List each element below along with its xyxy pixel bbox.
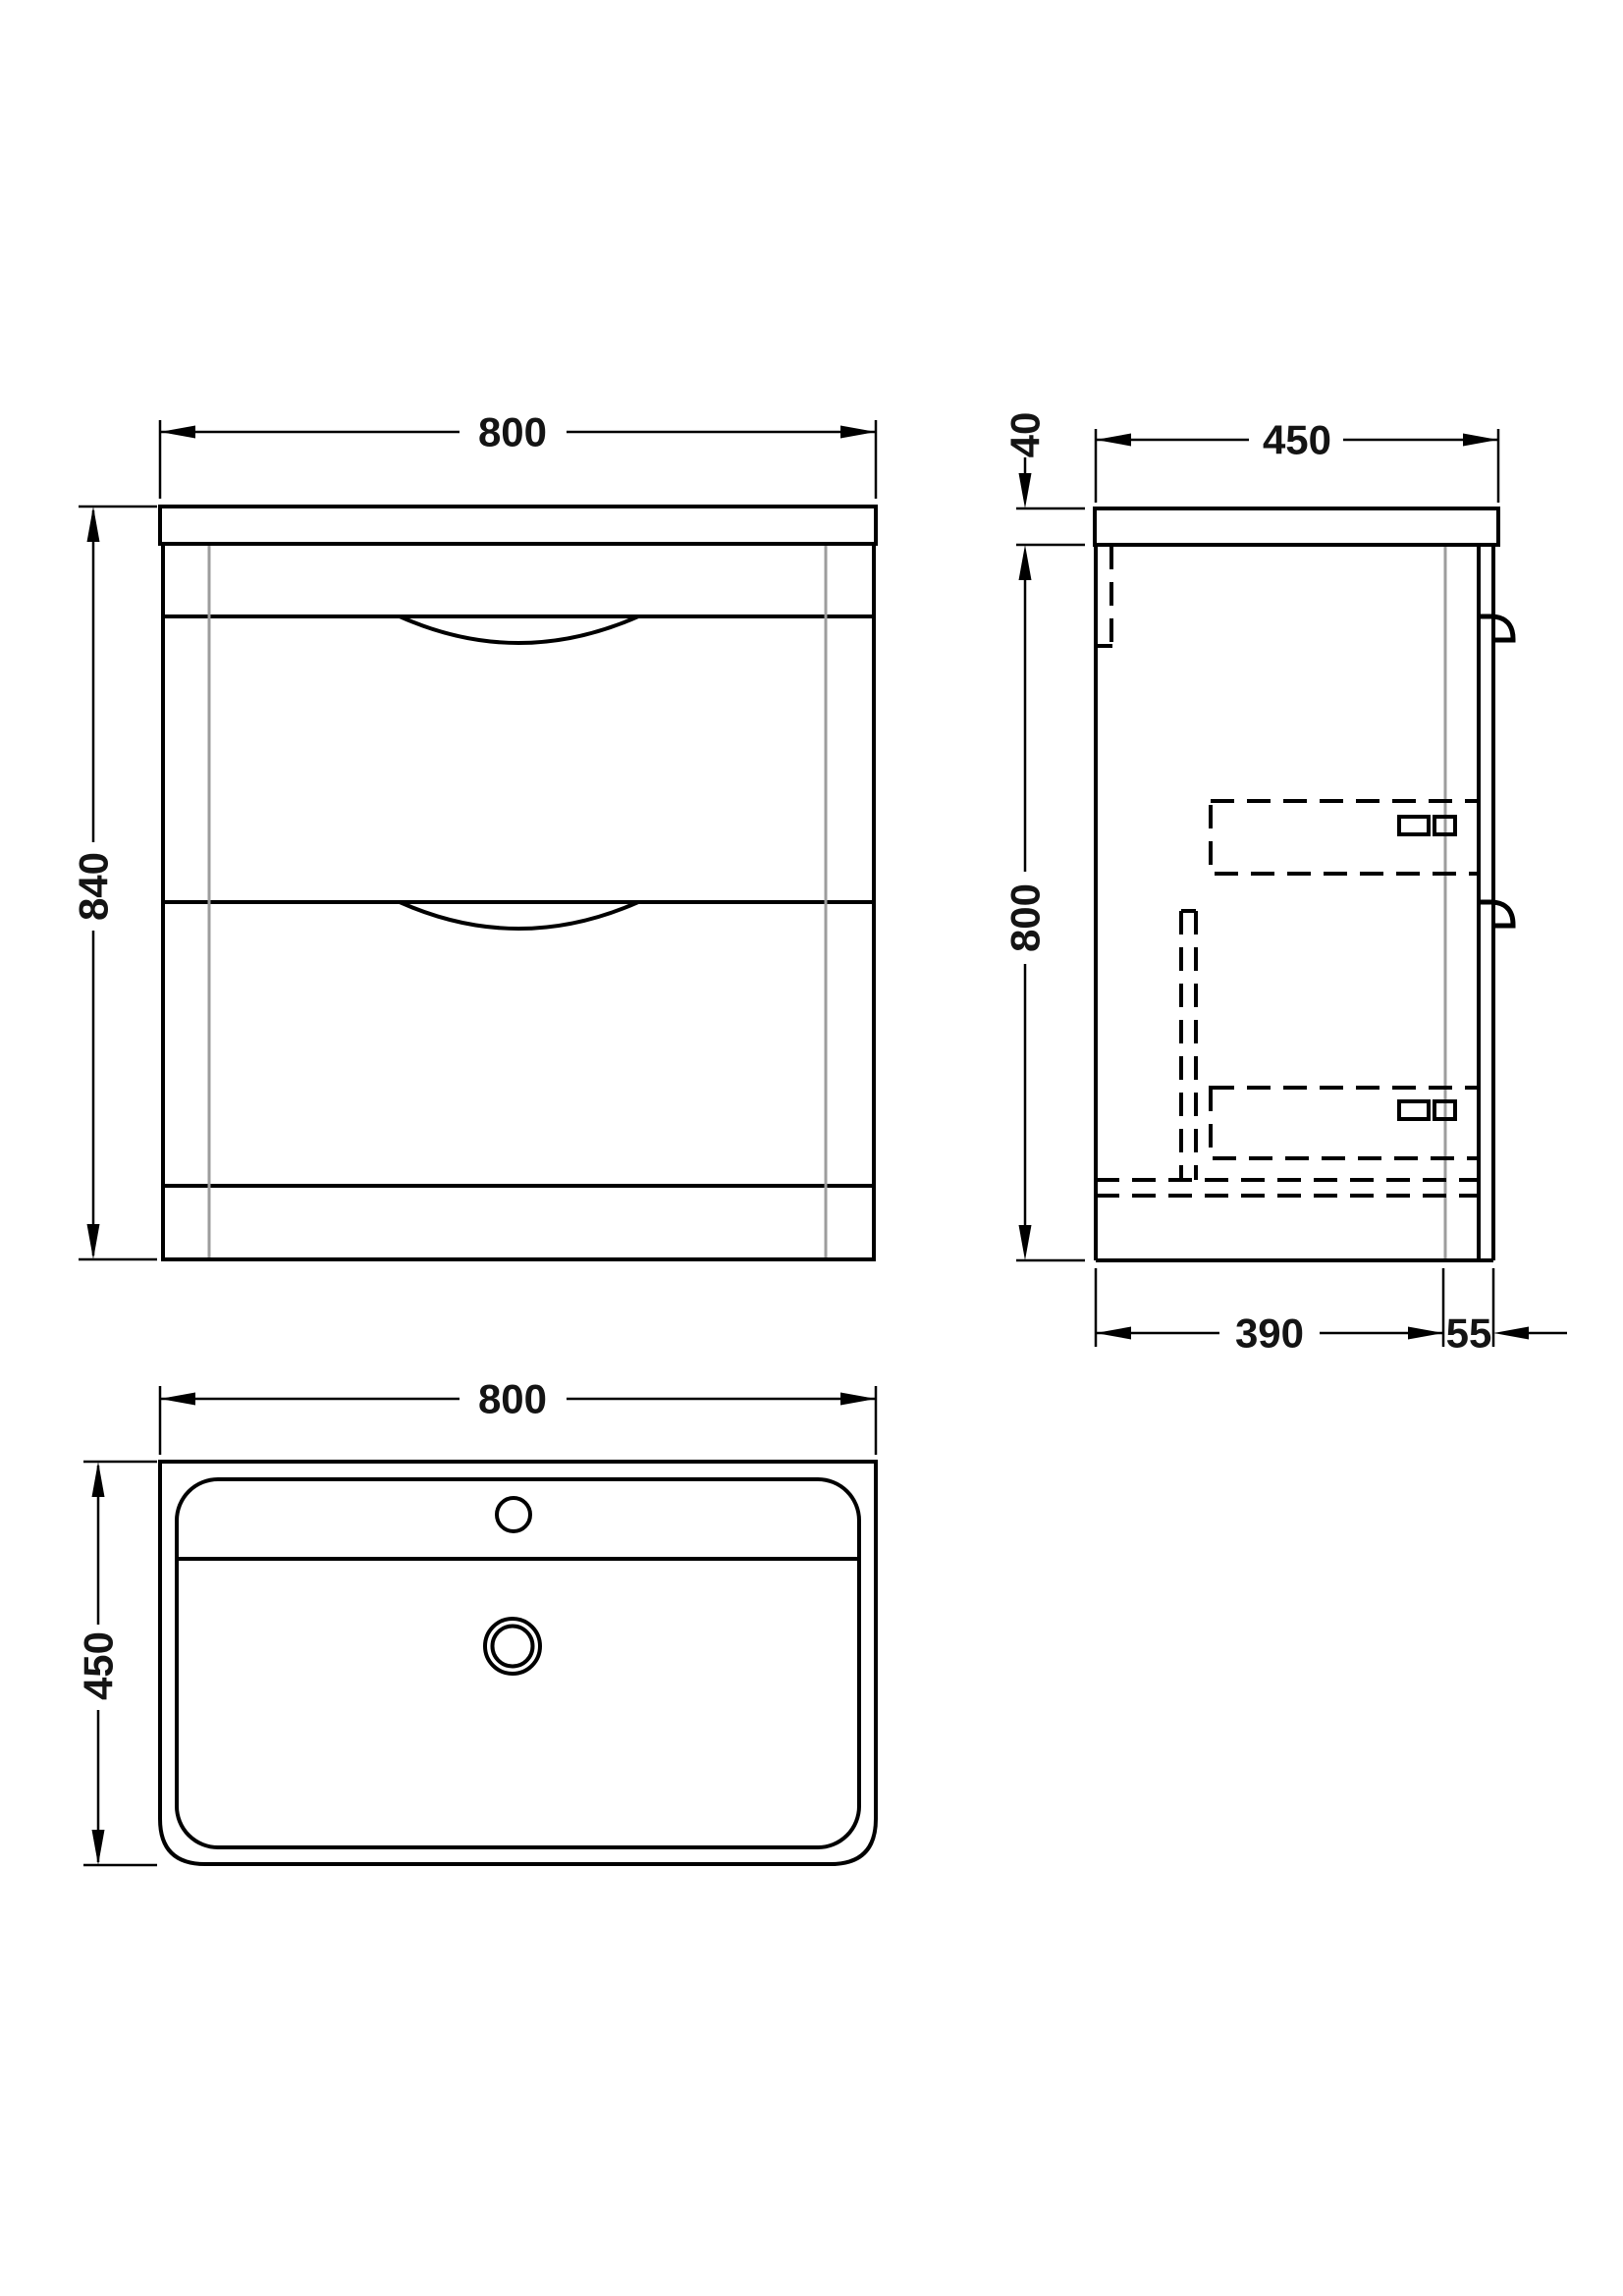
side-upper-drawer-hidden-box xyxy=(1211,801,1479,874)
front-drawer1-handle-curve xyxy=(400,616,638,643)
front-width-dimension: 800 xyxy=(160,409,876,500)
side-front-offset-label: 55 xyxy=(1446,1310,1492,1357)
front-height-label: 840 xyxy=(71,852,117,921)
side-lower-runner-detail-1 xyxy=(1399,1101,1429,1119)
side-depth-label: 450 xyxy=(1263,417,1331,463)
front-width-label: 800 xyxy=(478,409,547,455)
plan-basin-outer-outline xyxy=(160,1462,876,1864)
side-view: 40 450 800 390 xyxy=(1002,412,1568,1357)
side-height-dimension: 800 xyxy=(1002,580,1086,1260)
front-view: 800 840 xyxy=(71,409,877,1260)
side-lower-drawer-hidden-box xyxy=(1211,1088,1479,1158)
technical-drawing-canvas: 800 840 xyxy=(0,0,1623,2296)
side-base-depth-label: 390 xyxy=(1235,1310,1304,1357)
side-handle-top xyxy=(1479,616,1513,640)
side-worktop-thickness-dimension: 40 xyxy=(1002,412,1086,580)
side-upper-runner-detail-1 xyxy=(1399,817,1429,834)
side-bottom-dimensions: 390 55 xyxy=(1096,1268,1567,1357)
side-height-label: 800 xyxy=(1002,883,1049,952)
drawing-sheet: 800 840 xyxy=(0,0,1623,2296)
plan-depth-dimension: 450 xyxy=(76,1462,158,1865)
side-worktop xyxy=(1095,508,1498,545)
plan-width-dimension: 800 xyxy=(160,1376,876,1456)
side-handle-bottom xyxy=(1479,902,1513,926)
plan-view: 800 450 xyxy=(76,1376,877,1866)
plan-width-label: 800 xyxy=(478,1376,547,1422)
plan-depth-label: 450 xyxy=(76,1631,122,1700)
side-worktop-thickness-label: 40 xyxy=(1002,412,1049,458)
front-worktop xyxy=(160,507,876,544)
front-height-dimension: 840 xyxy=(71,507,158,1259)
front-drawer2-handle-curve xyxy=(400,902,638,929)
side-depth-dimension: 450 xyxy=(1096,417,1498,504)
